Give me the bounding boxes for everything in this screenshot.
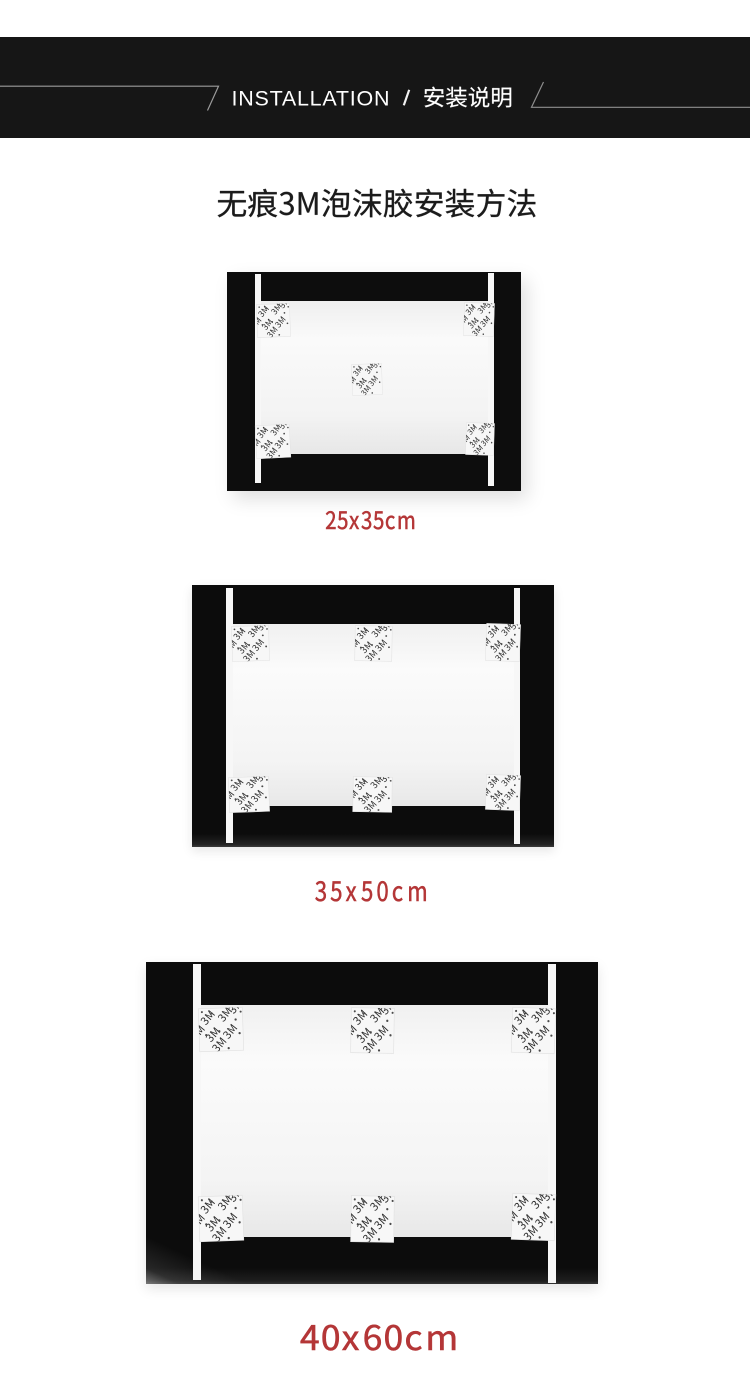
svg-text:INSTALLATION: INSTALLATION bbox=[232, 87, 391, 111]
